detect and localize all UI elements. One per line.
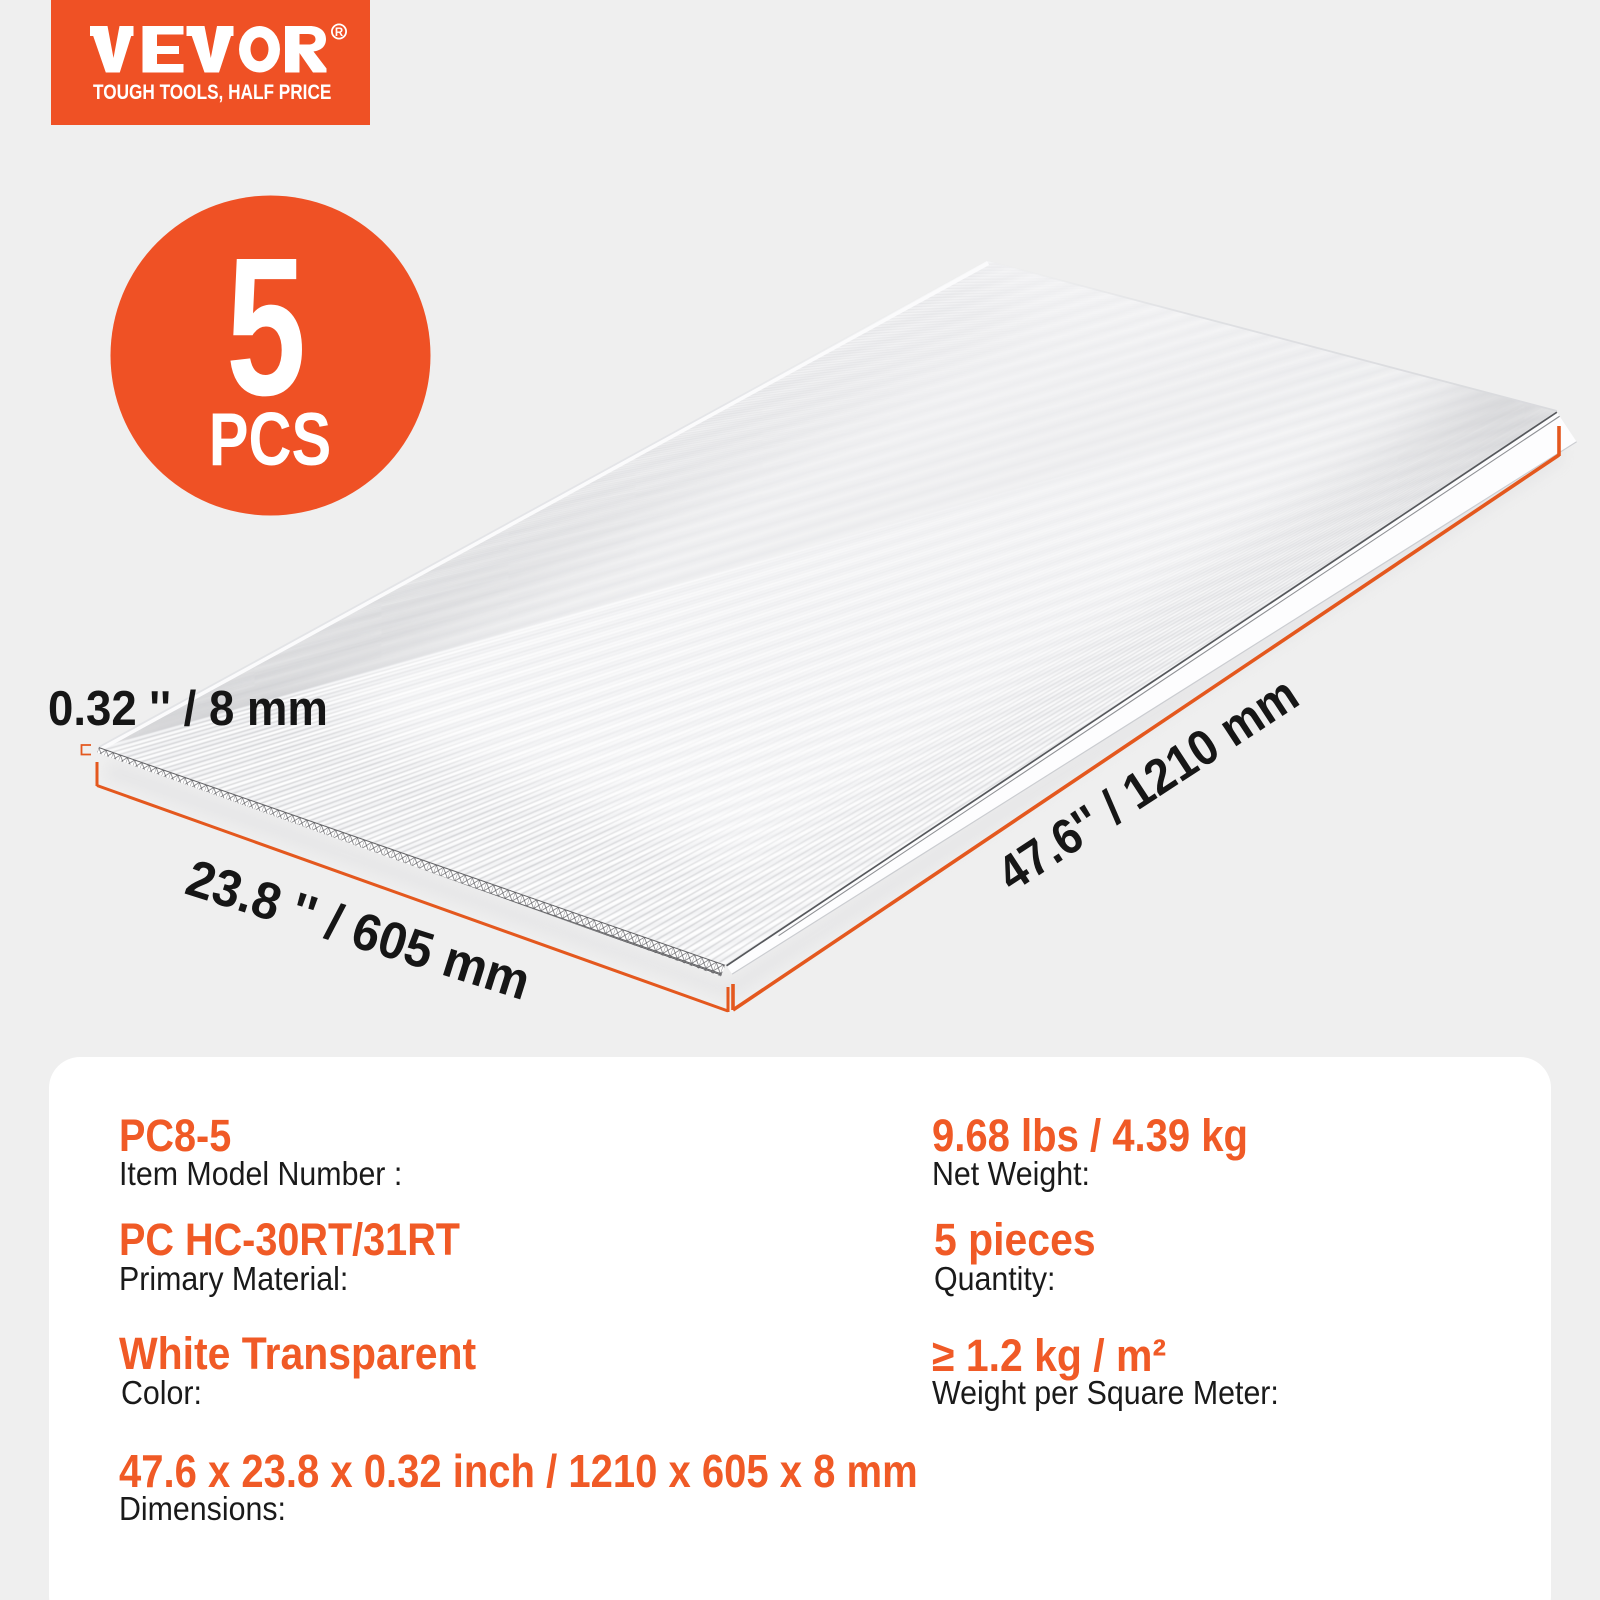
svg-text:Net Weight:: Net Weight: bbox=[932, 1155, 1090, 1192]
svg-text:PC8-5: PC8-5 bbox=[119, 1111, 231, 1161]
svg-text:Weight per Square Meter:: Weight per Square Meter: bbox=[932, 1374, 1279, 1411]
svg-text:Primary Material:: Primary Material: bbox=[119, 1260, 348, 1297]
svg-text:Color:: Color: bbox=[121, 1374, 202, 1411]
svg-text:0.32 '' / 8 mm: 0.32 '' / 8 mm bbox=[48, 682, 328, 737]
svg-text:Item Model Number :: Item Model Number : bbox=[119, 1155, 402, 1192]
svg-text:PCS: PCS bbox=[209, 399, 332, 482]
svg-text:Quantity:: Quantity: bbox=[934, 1260, 1055, 1297]
svg-text:White Transparent: White Transparent bbox=[119, 1329, 476, 1379]
svg-text:Dimensions:: Dimensions: bbox=[119, 1490, 286, 1527]
svg-text:PC HC-30RT/31RT: PC HC-30RT/31RT bbox=[119, 1215, 460, 1265]
svg-text:R: R bbox=[335, 27, 344, 39]
svg-text:5 pieces: 5 pieces bbox=[934, 1215, 1096, 1265]
svg-text:TOUGH TOOLS, HALF PRICE: TOUGH TOOLS, HALF PRICE bbox=[93, 81, 332, 104]
